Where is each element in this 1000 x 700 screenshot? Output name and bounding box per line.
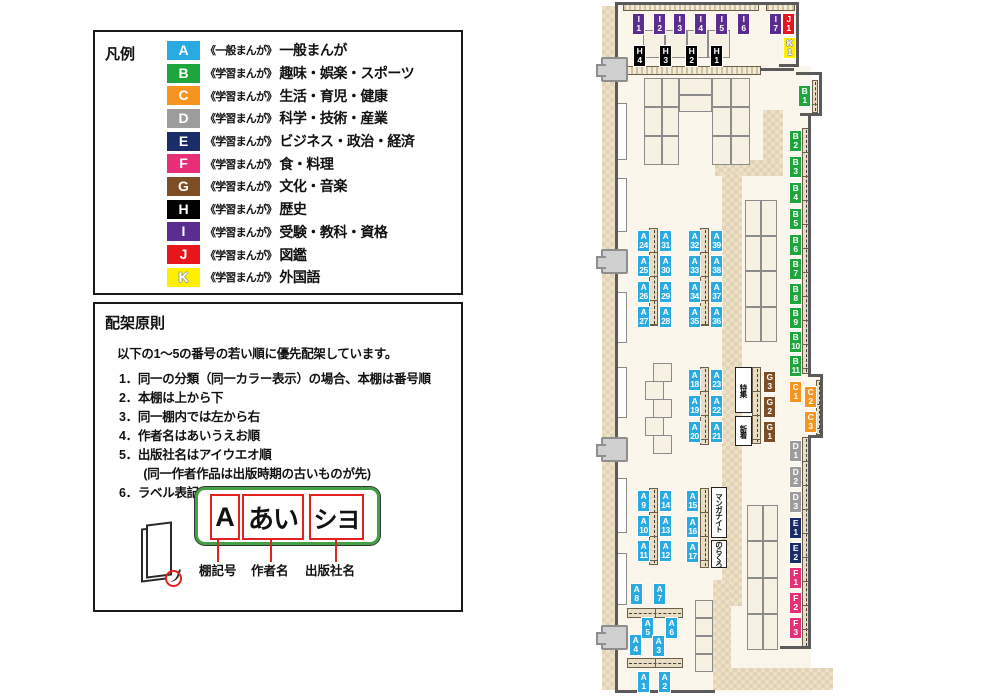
- shelf-number: 2: [662, 682, 666, 692]
- shelf-number: 8: [634, 594, 638, 604]
- shelf-number: 8: [793, 294, 797, 304]
- shelf-number: 30: [661, 266, 669, 276]
- shelf-label-B8: B8: [789, 283, 802, 305]
- shelf-number: 16: [688, 527, 696, 537]
- shelf-number: 25: [639, 266, 647, 276]
- shelf-label-B4: B4: [789, 182, 802, 204]
- table-cell: [731, 136, 750, 165]
- shelf-label-A8: A8: [630, 583, 643, 605]
- walkway: [713, 668, 833, 690]
- shelf-number: 4: [698, 24, 702, 34]
- shelf-label-A20: A20: [688, 421, 701, 443]
- shelf-label-A3: A3: [652, 635, 665, 657]
- shelf-number: 22: [712, 406, 720, 416]
- table-cell: [763, 505, 779, 541]
- shelf-number: 35: [690, 317, 698, 327]
- shelf-number: 1: [767, 432, 771, 442]
- table-cell: [712, 78, 731, 107]
- table-cell: [763, 578, 779, 614]
- table-cell: [695, 600, 713, 618]
- table-cell: [644, 136, 662, 165]
- shelf-number: 2: [793, 553, 797, 563]
- shelf-label-F3: F3: [789, 617, 802, 639]
- table-block: [747, 505, 778, 650]
- shelf-strip: [700, 488, 709, 568]
- shelf-label-B5: B5: [789, 208, 802, 230]
- table-cell: [731, 107, 750, 136]
- shelf-label-I7: I7: [769, 13, 782, 35]
- table-block: [644, 78, 679, 165]
- shelf-number: 2: [793, 477, 797, 487]
- shelf-label-A26: A26: [637, 281, 650, 303]
- shelf-label-D3: D3: [789, 491, 802, 513]
- shelf-label-C1: C1: [789, 381, 802, 403]
- table-cell: [745, 236, 761, 272]
- shelf-number: 1: [793, 528, 797, 538]
- shelf-number: 2: [793, 141, 797, 151]
- shelf-label-B10: B10: [789, 331, 802, 353]
- shelf-number: 3: [793, 502, 797, 512]
- shelf-number: 3: [793, 628, 797, 638]
- shelf-label-A32: A32: [688, 230, 701, 252]
- shelf-label-A12: A12: [659, 540, 672, 562]
- table-block: [653, 363, 672, 382]
- shelf-number: 3: [656, 646, 660, 656]
- table-block: [712, 78, 750, 165]
- table-cell: [653, 399, 672, 418]
- shelf-number: 5: [793, 219, 797, 229]
- shelf-number: 1: [793, 578, 797, 588]
- shelf-label-I6: I6: [737, 13, 750, 35]
- shelf-number: 6: [669, 628, 673, 638]
- shelf-number: 17: [688, 552, 696, 562]
- shelf-number: 4: [633, 645, 637, 655]
- shelf-label-B7: B7: [789, 258, 802, 280]
- shelf-label-A10: A10: [637, 515, 650, 537]
- shelf-number: 3: [677, 24, 681, 34]
- shelf-number: 13: [661, 526, 669, 536]
- shelf-label-A27: A27: [637, 306, 650, 328]
- shelf-label-A2: A2: [658, 671, 671, 693]
- table-cell: [653, 435, 672, 454]
- shelf-label-I1: I1: [632, 13, 645, 35]
- wall: [808, 113, 811, 376]
- table-cell: [763, 614, 779, 650]
- shelf-label-C3: C3: [804, 411, 817, 433]
- wall: [820, 374, 823, 438]
- shelf-number: 3: [793, 167, 797, 177]
- shelf-number: 28: [661, 317, 669, 327]
- shelf-number: 2: [657, 24, 661, 34]
- shelf-strip: [752, 367, 761, 444]
- shelf-label-A21: A21: [710, 421, 723, 443]
- shelf-number: 1: [793, 451, 797, 461]
- shelf-number: 21: [712, 432, 720, 442]
- table-cell: [679, 78, 712, 95]
- shelf-number: 18: [690, 380, 698, 390]
- entrance-door: [601, 57, 628, 82]
- wall: [780, 646, 811, 649]
- shelf-label-F1: F1: [789, 567, 802, 589]
- table-cell: [745, 271, 761, 307]
- table-block: [645, 381, 664, 400]
- shelf-label-A28: A28: [659, 306, 672, 328]
- shelf-number: 1: [641, 682, 645, 692]
- norakuro-note: のらくろ: [711, 540, 727, 568]
- shelf-number: 4: [793, 193, 797, 203]
- shelf-label-G1: G1: [763, 421, 776, 443]
- shelf-label-A17: A17: [686, 541, 699, 563]
- shelf-number: 1: [636, 24, 640, 34]
- table-cell: [695, 654, 713, 672]
- table-cell: [679, 95, 712, 112]
- shelf-number: 5: [645, 628, 649, 638]
- wall: [819, 72, 822, 116]
- table-cell: [695, 636, 713, 654]
- shelf-strip: [627, 658, 683, 668]
- table-block: [679, 78, 712, 112]
- table-cell: [761, 307, 777, 343]
- table-cell: [644, 107, 662, 136]
- shelf-label-A6: A6: [665, 617, 678, 639]
- shelf-number: 37: [712, 292, 720, 302]
- shelf-number: 12: [661, 551, 669, 561]
- shelf-label-H2: H2: [685, 45, 698, 67]
- shelf-label-B2: B2: [789, 130, 802, 152]
- shelf-label-J1: J1: [782, 13, 795, 35]
- shelf-number: 1: [786, 24, 790, 34]
- table-cell: [662, 107, 680, 136]
- shelf-number: 19: [690, 406, 698, 416]
- shelf-label-B11: B11: [789, 355, 802, 377]
- shelf-strip: [625, 66, 761, 75]
- table-cell: [761, 200, 777, 236]
- table-cell: [712, 107, 731, 136]
- shelf-label-A11: A11: [637, 540, 650, 562]
- shelf-number: 27: [639, 317, 647, 327]
- shelf-number: 15: [688, 501, 696, 511]
- shelf-label-H4: H4: [633, 45, 646, 67]
- table-cell: [653, 363, 672, 382]
- shelf-label-A15: A15: [686, 490, 699, 512]
- table-cell: [695, 618, 713, 636]
- table-cell: [731, 78, 750, 107]
- shelf-number: 11: [640, 551, 648, 561]
- shelf-number: 5: [719, 24, 723, 34]
- manga-night-note: マンガナイト: [711, 487, 727, 538]
- table-cell: [747, 541, 763, 577]
- shelf-label-A23: A23: [710, 369, 723, 391]
- tokushu-note: 特集: [735, 367, 752, 413]
- wall: [615, 2, 799, 5]
- shelf-label-A33: A33: [688, 255, 701, 277]
- shelf-strip: [649, 228, 658, 326]
- shelf-label-D1: D1: [789, 440, 802, 462]
- shelf-number: 24: [639, 241, 647, 251]
- shelf-label-G3: G3: [763, 371, 776, 393]
- shelf-number: 6: [793, 245, 797, 255]
- table-cell: [747, 505, 763, 541]
- table-cell: [662, 78, 680, 107]
- shelf-number: 1: [793, 392, 797, 402]
- shelf-label-A30: A30: [659, 255, 672, 277]
- shelf-label-B6: B6: [789, 234, 802, 256]
- shelf-number: 31: [661, 241, 669, 251]
- wall: [779, 64, 799, 67]
- shelf-label-A34: A34: [688, 281, 701, 303]
- shelf-label-H1: H1: [710, 45, 723, 67]
- shelf-number: 7: [793, 269, 797, 279]
- table-block: [653, 435, 672, 454]
- table-cell: [745, 200, 761, 236]
- shelf-label-A36: A36: [710, 306, 723, 328]
- shelf-label-A35: A35: [688, 306, 701, 328]
- table-cell: [644, 78, 662, 107]
- shelf-label-A9: A9: [637, 490, 650, 512]
- shelf-number: 7: [657, 594, 661, 604]
- shelf-label-B1: B1: [798, 85, 811, 107]
- table-cell: [747, 614, 763, 650]
- shelf-number: 9: [793, 318, 797, 328]
- shelf-label-H3: H3: [659, 45, 672, 67]
- shelf-number: 11: [792, 366, 800, 376]
- shelf-number: 38: [712, 266, 720, 276]
- shelf-label-B3: B3: [789, 156, 802, 178]
- shelf-label-A29: A29: [659, 281, 672, 303]
- shelf-number: 20: [690, 432, 698, 442]
- shelf-number: 10: [639, 526, 647, 536]
- shelf-label-C2: C2: [804, 386, 817, 408]
- shelf-label-I3: I3: [673, 13, 686, 35]
- shelf-strip: [649, 488, 658, 565]
- shelf-label-A1: A1: [637, 671, 650, 693]
- shelf-label-K1: K1: [783, 37, 796, 59]
- shelf-number: 4: [637, 56, 641, 66]
- wall: [800, 113, 822, 116]
- shelf-label-A37: A37: [710, 281, 723, 303]
- entrance-door: [601, 249, 628, 274]
- shelf-label-A4: A4: [629, 634, 642, 656]
- shelf-number: 7: [773, 24, 777, 34]
- shelf-number: 2: [767, 407, 771, 417]
- table-block: [645, 417, 664, 436]
- shelf-number: 36: [712, 317, 720, 327]
- shelf-label-I5: I5: [715, 13, 728, 35]
- table-cell: [763, 541, 779, 577]
- shelf-label-A19: A19: [688, 395, 701, 417]
- shelf-label-A31: A31: [659, 230, 672, 252]
- shelf-label-I4: I4: [694, 13, 707, 35]
- shelf-number: 23: [712, 380, 720, 390]
- table-cell: [761, 236, 777, 272]
- table-cell: [712, 136, 731, 165]
- shelf-label-A24: A24: [637, 230, 650, 252]
- entrance-door: [601, 437, 628, 462]
- shelf-label-A25: A25: [637, 255, 650, 277]
- shelf-number: 10: [791, 342, 799, 352]
- shelf-number: 33: [690, 266, 698, 276]
- table-cell: [761, 271, 777, 307]
- shelf-label-E1: E1: [789, 517, 802, 539]
- shelf-label-A22: A22: [710, 395, 723, 417]
- shelf-number: 26: [639, 292, 647, 302]
- table-cell: [645, 417, 664, 436]
- shelf-label-A13: A13: [659, 515, 672, 537]
- shelf-strip: [700, 367, 709, 445]
- shelf-number: 34: [690, 292, 698, 302]
- table-block: [653, 399, 672, 418]
- shelf-strip: [700, 228, 709, 326]
- shelf-number: 1: [714, 56, 718, 66]
- shelf-number: 1: [802, 96, 806, 106]
- shelf-label-G2: G2: [763, 396, 776, 418]
- wall: [796, 2, 799, 67]
- shelf-label-A39: A39: [710, 230, 723, 252]
- floor-map: I1I2I3I4I5I6I7J1K1H4H3H2H1B1B2B3B4B5B6B7…: [0, 0, 1000, 700]
- shelf-number: 39: [712, 241, 720, 251]
- shelf-label-E2: E2: [789, 542, 802, 564]
- wall: [808, 437, 811, 648]
- table-block: [745, 200, 777, 342]
- walkway: [602, 6, 615, 690]
- shelf-label-A18: A18: [688, 369, 701, 391]
- shelf-label-D2: D2: [789, 466, 802, 488]
- table-cell: [745, 307, 761, 343]
- wall: [760, 68, 794, 71]
- shelf-number: 6: [741, 24, 745, 34]
- shelf-label-I2: I2: [653, 13, 666, 35]
- shelf-number: 32: [690, 241, 698, 251]
- shelf-number: 29: [661, 292, 669, 302]
- table-block: [695, 600, 713, 672]
- shelf-label-A38: A38: [710, 255, 723, 277]
- entrance-door: [601, 625, 628, 650]
- shelf-number: 9: [641, 501, 645, 511]
- shelf-number: 3: [808, 422, 812, 432]
- shelf-label-F2: F2: [789, 592, 802, 614]
- shinchaku-note: 新着: [735, 416, 752, 446]
- shelf-number: 3: [767, 382, 771, 392]
- shelf-label-A14: A14: [659, 490, 672, 512]
- wall: [615, 2, 618, 693]
- shelf-label-A7: A7: [653, 583, 666, 605]
- table-cell: [662, 136, 680, 165]
- shelf-number: 1: [787, 48, 791, 58]
- shelf-number: 2: [793, 603, 797, 613]
- shelf-strip: [812, 80, 818, 113]
- table-cell: [747, 578, 763, 614]
- shelf-number: 3: [663, 56, 667, 66]
- table-cell: [645, 381, 664, 400]
- shelf-number: 2: [689, 56, 693, 66]
- walkway: [713, 580, 731, 670]
- shelf-number: 14: [661, 501, 669, 511]
- shelf-label-A16: A16: [686, 516, 699, 538]
- shelf-number: 2: [808, 397, 812, 407]
- shelf-label-B9: B9: [789, 307, 802, 329]
